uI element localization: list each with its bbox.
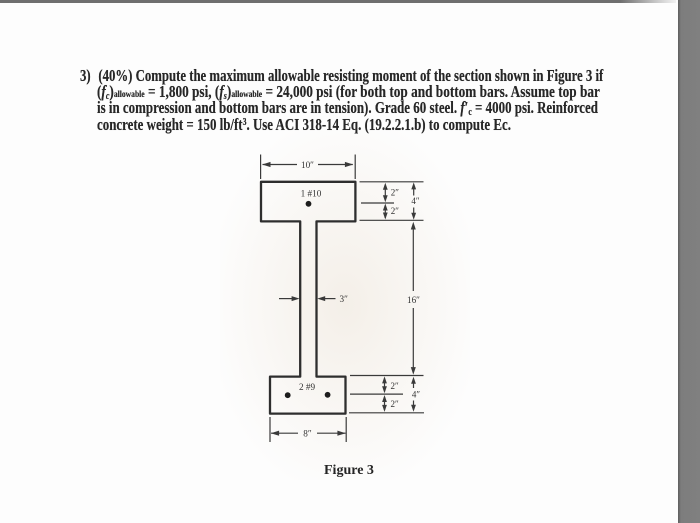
- svg-text:4″: 4″: [412, 390, 421, 400]
- svg-text:2″: 2″: [391, 187, 400, 197]
- svg-text:2 #9: 2 #9: [299, 382, 315, 392]
- svg-text:2″: 2″: [391, 381, 400, 391]
- svg-text:3″: 3″: [340, 294, 349, 304]
- svg-text:16″: 16″: [407, 295, 420, 305]
- svg-text:1 #10: 1 #10: [301, 188, 322, 198]
- svg-text:10″: 10″: [301, 160, 314, 170]
- svg-text:2″: 2″: [391, 399, 400, 409]
- svg-text:2″: 2″: [391, 206, 400, 216]
- svg-text:4″: 4″: [411, 196, 420, 206]
- svg-text:8″: 8″: [303, 429, 312, 439]
